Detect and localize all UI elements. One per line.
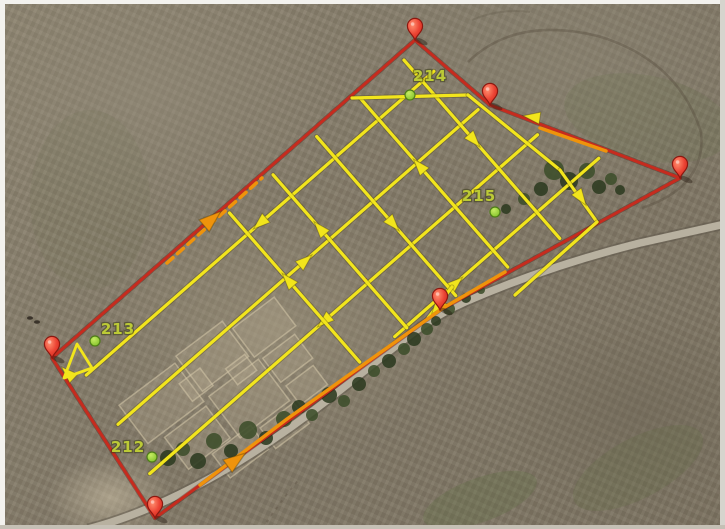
waypoint-label: 214 — [413, 67, 447, 85]
pin-highlight — [48, 340, 52, 344]
waypoint-label: 213 — [101, 320, 135, 338]
frame-edge-left — [0, 0, 5, 529]
flight-plan-overlay: 212213214215 — [0, 0, 725, 529]
map-viewport: 212213214215 — [0, 0, 725, 529]
waypoint-label: 212 — [111, 438, 145, 456]
pin-highlight — [411, 22, 415, 26]
frame-edge-right — [720, 0, 725, 529]
pin-highlight — [151, 500, 155, 504]
waypoint-dot[interactable] — [405, 90, 415, 100]
pin-icon — [407, 18, 422, 40]
waypoints: 212213214215 — [90, 67, 500, 462]
waypoint-dot[interactable] — [490, 207, 500, 217]
waypoint-dot[interactable] — [90, 336, 100, 346]
frame-edge-top — [0, 0, 725, 4]
pin-highlight — [486, 87, 490, 91]
pin-highlight — [676, 160, 680, 164]
waypoint-label: 215 — [462, 187, 496, 205]
pin-highlight — [436, 292, 440, 296]
frame-edge-bottom — [0, 525, 725, 529]
waypoint-dot[interactable] — [147, 452, 157, 462]
